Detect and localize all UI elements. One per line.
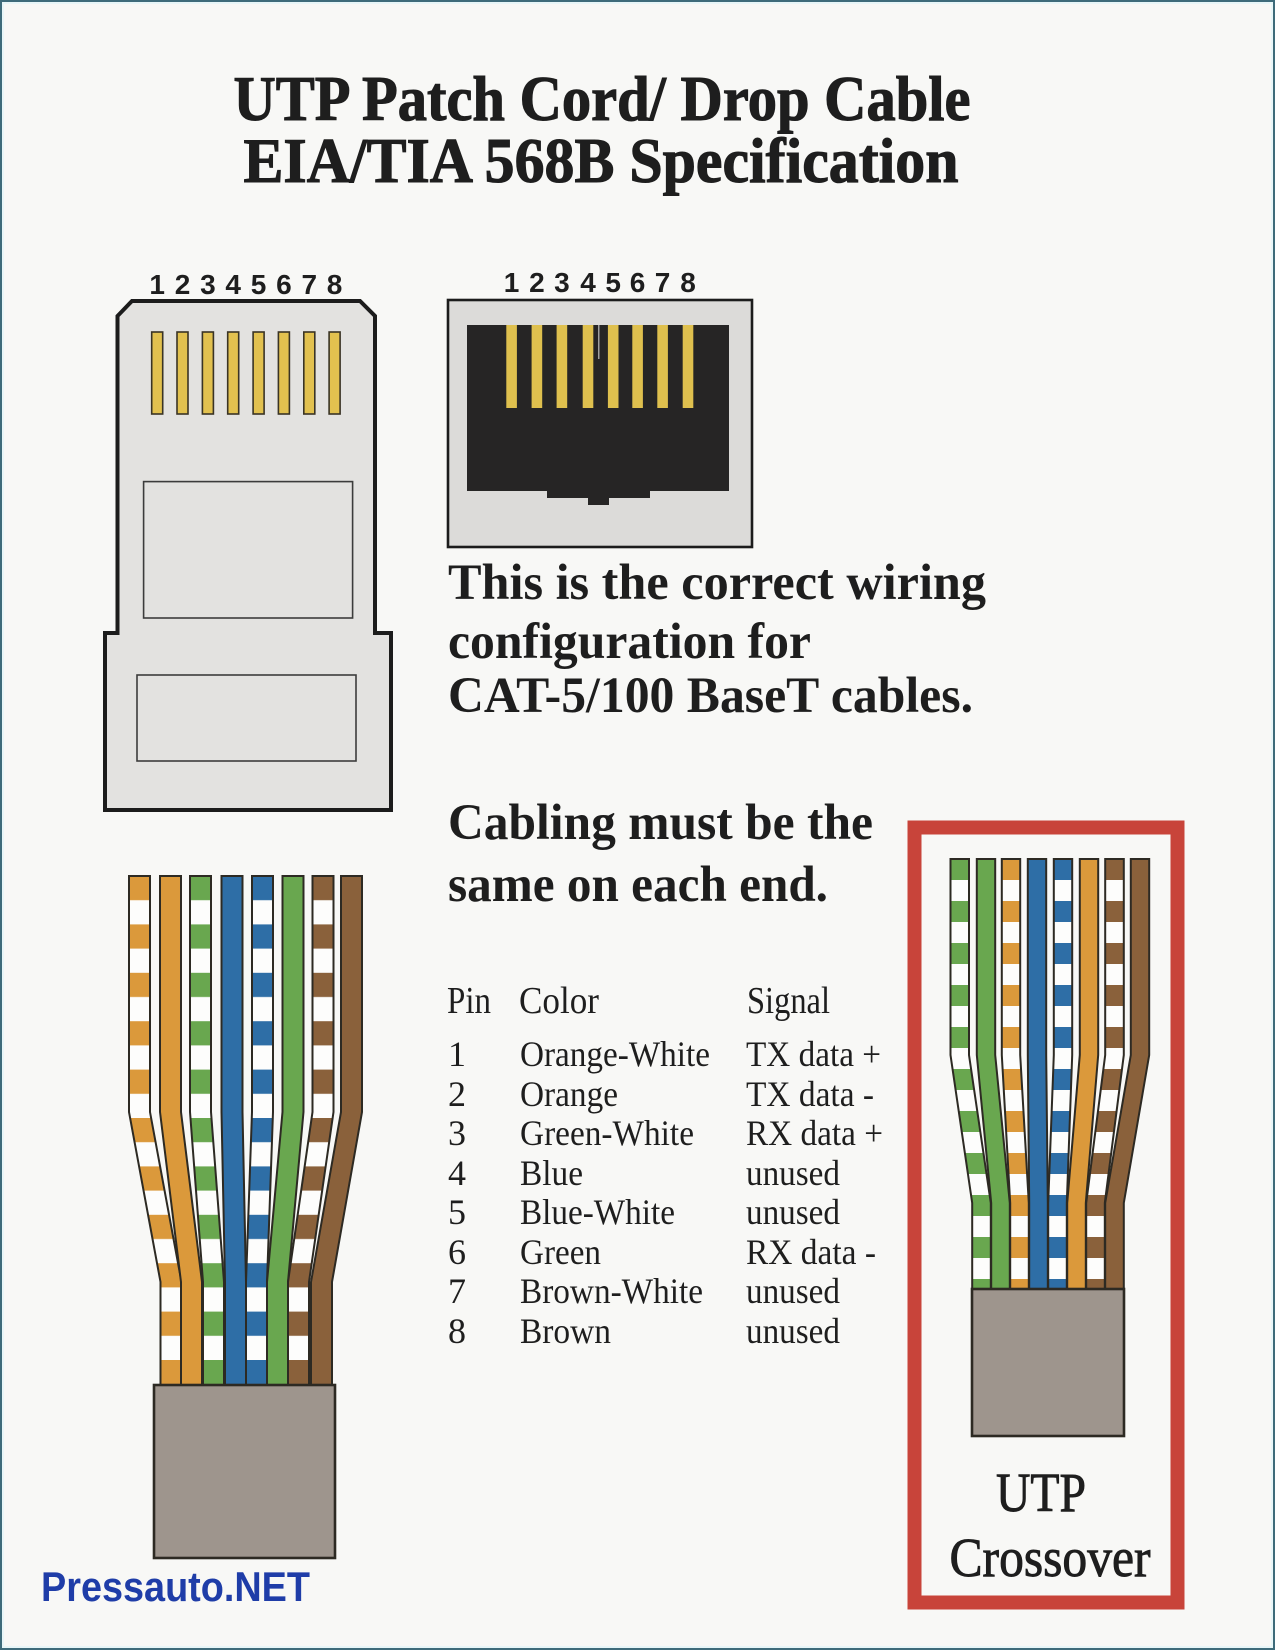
svg-text:Blue: Blue [520,1153,583,1193]
svg-text:Orange: Orange [520,1074,618,1114]
svg-text:unused: unused [746,1153,840,1193]
svg-text:7: 7 [302,269,318,300]
svg-text:1: 1 [504,267,520,298]
svg-text:4: 4 [225,269,241,300]
svg-text:RX data +: RX data + [746,1113,883,1153]
svg-text:4: 4 [580,267,596,298]
svg-text:1: 1 [448,1034,466,1074]
svg-text:7: 7 [655,267,671,298]
svg-text:TX data -: TX data - [746,1074,874,1114]
svg-text:3: 3 [448,1113,466,1153]
svg-text:6: 6 [276,269,292,300]
svg-text:6: 6 [630,267,646,298]
svg-text:5: 5 [448,1192,466,1232]
svg-text:TX data +: TX data + [746,1034,881,1074]
svg-text:Pin: Pin [447,980,491,1022]
svg-text:unused: unused [746,1271,840,1311]
svg-text:5: 5 [251,269,267,300]
svg-text:2: 2 [175,269,191,300]
svg-text:Crossover: Crossover [950,1527,1151,1588]
svg-text:Green: Green [520,1232,601,1272]
svg-text:3: 3 [554,267,570,298]
svg-text:Color: Color [519,980,599,1022]
svg-text:Green-White: Green-White [520,1113,694,1153]
svg-text:This is the correct wiring: This is the correct wiring [448,555,986,611]
svg-text:Signal: Signal [747,980,830,1022]
svg-text:8: 8 [327,269,343,300]
svg-text:Blue-White: Blue-White [520,1192,675,1232]
svg-text:Brown: Brown [520,1311,611,1351]
svg-text:8: 8 [448,1311,466,1351]
svg-text:2: 2 [448,1074,466,1114]
svg-text:Pressauto.NET: Pressauto.NET [41,1563,310,1610]
svg-text:3: 3 [200,269,216,300]
svg-text:EIA/TIA 568B Specification: EIA/TIA 568B Specification [244,125,959,196]
svg-text:Brown-White: Brown-White [520,1271,703,1311]
svg-text:4: 4 [448,1153,466,1193]
svg-text:6: 6 [448,1232,466,1272]
svg-text:Cabling must be the: Cabling must be the [448,795,873,851]
svg-text:8: 8 [680,267,696,298]
svg-text:1: 1 [149,269,165,300]
svg-text:unused: unused [746,1192,840,1232]
svg-text:CAT-5/100 BaseT cables.: CAT-5/100 BaseT cables. [448,668,973,724]
svg-text:RX data -: RX data - [746,1232,876,1272]
svg-text:configuration for: configuration for [448,614,811,670]
svg-text:UTP: UTP [996,1462,1086,1523]
svg-text:UTP Patch Cord/ Drop Cable: UTP Patch Cord/ Drop Cable [234,63,971,134]
svg-text:Orange-White: Orange-White [520,1034,710,1074]
svg-text:same on each end.: same on each end. [448,857,828,913]
svg-text:2: 2 [529,267,545,298]
svg-text:7: 7 [448,1271,466,1311]
svg-text:5: 5 [605,267,621,298]
svg-text:unused: unused [746,1311,840,1351]
